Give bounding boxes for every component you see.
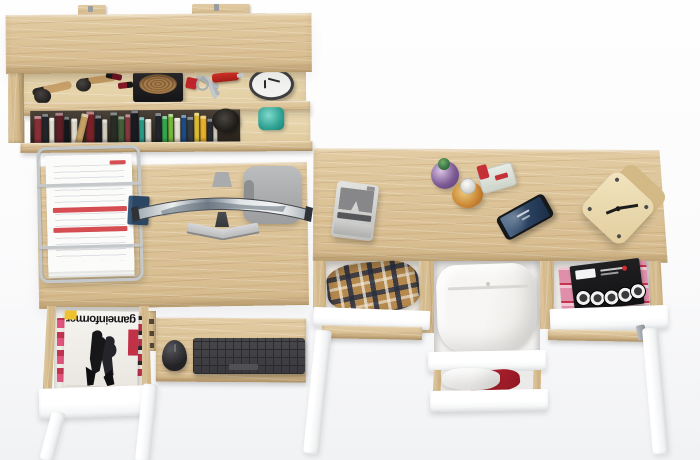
white-garment bbox=[442, 368, 500, 390]
white-trousers bbox=[435, 262, 538, 353]
book-spine bbox=[200, 116, 206, 143]
book-spine bbox=[174, 118, 180, 143]
cover-circle bbox=[630, 283, 646, 299]
book-spine bbox=[49, 118, 54, 144]
book-spine bbox=[118, 116, 124, 143]
book-spine bbox=[95, 115, 101, 143]
cover-circle bbox=[590, 290, 606, 306]
black-music-magazine bbox=[569, 258, 644, 312]
makeup-brush-head bbox=[34, 89, 51, 104]
makeup-brush-head bbox=[76, 78, 91, 91]
clock-hand bbox=[264, 80, 266, 88]
alarm-clock bbox=[249, 68, 294, 100]
price-chip bbox=[65, 310, 77, 319]
camera-lens bbox=[212, 108, 239, 132]
mouse bbox=[162, 340, 187, 371]
book-row bbox=[33, 110, 238, 143]
magazine-red-dot bbox=[622, 265, 628, 271]
wall-shelf bbox=[6, 13, 313, 153]
book-spine bbox=[168, 114, 173, 143]
book-spine bbox=[139, 117, 144, 143]
book-spine bbox=[145, 119, 151, 143]
magazine-title-block bbox=[575, 268, 596, 279]
magazine-text bbox=[601, 272, 619, 276]
clock-screw bbox=[616, 233, 622, 239]
teal-glass bbox=[258, 107, 284, 130]
drawer-slide-rail bbox=[548, 329, 650, 342]
book-spine bbox=[110, 112, 117, 143]
cover-circle bbox=[576, 290, 592, 306]
bracket-screw bbox=[88, 6, 93, 12]
book-spine bbox=[187, 117, 193, 143]
cover-red-strip bbox=[128, 329, 138, 355]
gameinformer-magazine: gameinformer bbox=[63, 310, 138, 391]
book-spine bbox=[42, 114, 48, 144]
printer-front-panel bbox=[333, 221, 372, 239]
desk-leg bbox=[642, 327, 669, 454]
drawer-slide-rail bbox=[322, 325, 422, 340]
keyboard bbox=[193, 338, 305, 374]
trouser-button bbox=[486, 282, 490, 286]
drawer-frame-rail bbox=[648, 261, 664, 312]
magazine-title: gameinformer bbox=[67, 312, 137, 325]
perfume-cap-white bbox=[460, 178, 476, 194]
perfume-cap-green bbox=[438, 158, 450, 170]
clock-screw bbox=[643, 204, 649, 210]
book-spine bbox=[194, 113, 199, 143]
plaid-shirt bbox=[325, 259, 420, 315]
book-spine bbox=[181, 115, 186, 143]
printer bbox=[331, 181, 380, 242]
clock-screw bbox=[587, 206, 593, 212]
shelf-top-board bbox=[6, 13, 312, 74]
printer-slot bbox=[337, 212, 371, 222]
book-spine bbox=[155, 113, 161, 143]
cover-figures bbox=[71, 326, 128, 387]
book-spine bbox=[55, 113, 63, 144]
printer-paper-recess bbox=[338, 187, 374, 213]
drawer-frame-rail bbox=[313, 261, 326, 313]
magazine-text bbox=[600, 267, 624, 272]
clock-screw bbox=[614, 177, 620, 183]
book-spine bbox=[125, 114, 130, 143]
printer-button bbox=[367, 186, 375, 191]
bracket-screw bbox=[214, 4, 219, 11]
desk-leg bbox=[303, 329, 332, 454]
book-spine bbox=[102, 119, 107, 143]
book-spine bbox=[162, 116, 167, 143]
desk-set-render: gameinformer bbox=[0, 0, 700, 460]
book-spine bbox=[131, 110, 138, 143]
book-spine bbox=[64, 117, 69, 144]
drawer-front bbox=[430, 389, 548, 412]
shelf-side-panel bbox=[8, 73, 24, 143]
key-ring bbox=[196, 78, 209, 91]
book-spine bbox=[34, 116, 41, 144]
cover-circle bbox=[604, 290, 620, 306]
